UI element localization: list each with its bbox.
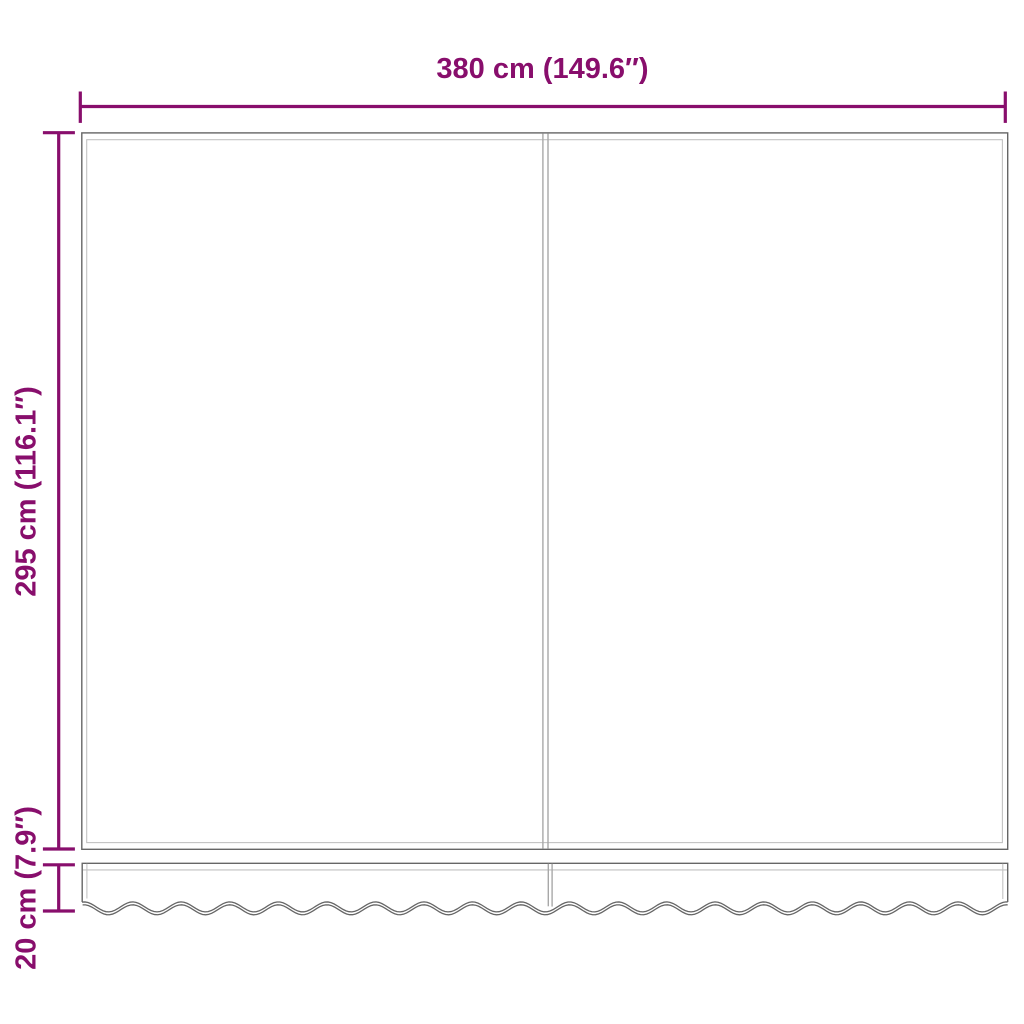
svg-text:380 cm (149.6″): 380 cm (149.6″) xyxy=(436,53,648,85)
svg-text:295 cm (116.1″): 295 cm (116.1″) xyxy=(10,386,42,597)
svg-text:20 cm (7.9″): 20 cm (7.9″) xyxy=(10,806,42,970)
